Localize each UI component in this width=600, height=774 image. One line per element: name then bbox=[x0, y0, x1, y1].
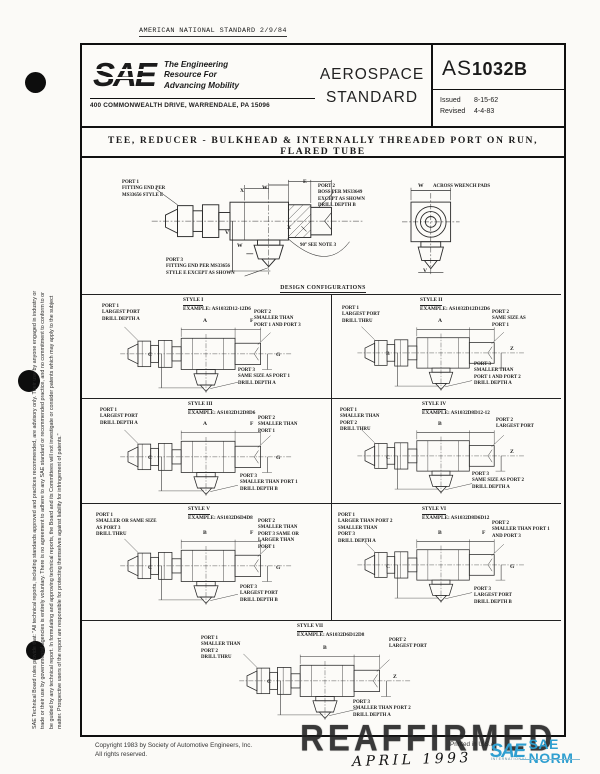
style-name: STYLE IV bbox=[422, 401, 446, 410]
dim-top1: A bbox=[203, 421, 207, 427]
style-cell-1: STYLE I EXAMPLE: AS1032D12-12D6 PORT 1 L… bbox=[88, 296, 330, 398]
page-title: TEE, REDUCER - BULKHEAD & INTERNALLY THR… bbox=[82, 135, 564, 157]
dim-right: Z bbox=[510, 346, 514, 352]
style-name: STYLE II bbox=[420, 297, 442, 306]
tee-drawing bbox=[346, 529, 536, 605]
across-wrench-pads-label: ACROSS WRENCH PADS bbox=[433, 184, 523, 190]
style-name: STYLE I bbox=[183, 297, 203, 306]
dim-top1: B bbox=[438, 530, 442, 536]
dim-top1: B bbox=[438, 421, 442, 427]
dim-top1: B bbox=[203, 530, 207, 536]
logo-slat bbox=[93, 77, 165, 79]
style-heading: STYLE VI EXAMPLE: AS1032D8D6D12 bbox=[422, 506, 489, 522]
sae-address: 400 COMMONWEALTH DRIVE, WARRENDALE, PA 1… bbox=[90, 102, 270, 109]
callout-port3: PORT 3 FITTING END PER MS33656 STYLE E E… bbox=[166, 258, 276, 277]
address-rule bbox=[90, 98, 315, 99]
dim-left: B bbox=[386, 351, 390, 357]
grid-line-h3 bbox=[82, 503, 561, 504]
style-heading: STYLE V EXAMPLE: AS1032D6D4D8 bbox=[188, 506, 253, 522]
issued-label: Issued bbox=[440, 95, 474, 106]
grid-line-h1 bbox=[82, 294, 561, 295]
style-cell-4: STYLE IV EXAMPLE: AS1032D8D12-12 PORT 1 … bbox=[332, 400, 560, 501]
end-view-drawing bbox=[393, 182, 465, 278]
copyright-line1: Copyright 1983 by Society of Automotive … bbox=[95, 741, 252, 750]
dim-letter-x: X bbox=[240, 188, 244, 194]
issued-row: Issued8-15-62 bbox=[440, 95, 498, 106]
dim-top1: B bbox=[323, 645, 327, 651]
style-cell-3: STYLE III EXAMPLE: AS1032D12D8D6 PORT 1 … bbox=[88, 400, 330, 501]
style-name: STYLE VI bbox=[422, 506, 446, 515]
style-name: STYLE III bbox=[188, 401, 212, 410]
doc-number-rule bbox=[432, 89, 564, 90]
dim-left: C bbox=[386, 564, 390, 570]
side-disclaimer: SAE Technical Board rules provide that: … bbox=[31, 81, 65, 729]
title-band: TEE, REDUCER - BULKHEAD & INTERNALLY THR… bbox=[82, 127, 564, 158]
style-example: EXAMPLE: AS1032D12D12D6 bbox=[420, 306, 490, 312]
style-example: EXAMPLE: AS1032D6D4D8 bbox=[188, 515, 253, 521]
dim-left: C bbox=[148, 352, 152, 358]
dim-top2: F bbox=[250, 421, 253, 427]
grid-line-h2 bbox=[82, 398, 561, 399]
revised-row: Revised4-4-83 bbox=[440, 106, 498, 117]
tee-drawing bbox=[108, 529, 304, 607]
sae-logo: SAE bbox=[93, 58, 155, 91]
dim-right: G bbox=[276, 455, 280, 461]
ansi-header: AMERICAN NATIONAL STANDARD 2/9/84 bbox=[139, 27, 287, 37]
dim-letter-v: V bbox=[225, 230, 229, 236]
tee-drawing bbox=[346, 317, 536, 393]
callout-port2: PORT 2 BOSS PER MS33649 EXCEPT AS SHOWN … bbox=[318, 184, 396, 210]
revised-label: Revised bbox=[440, 106, 474, 117]
dim-letter-e: E bbox=[303, 179, 307, 185]
dim-top2: F bbox=[250, 530, 253, 536]
style-name: STYLE V bbox=[188, 506, 210, 515]
dim-right: Z bbox=[510, 449, 514, 455]
section-heading: DESIGN CONFIGURATIONS bbox=[82, 285, 564, 291]
dim-right: Z bbox=[393, 674, 397, 680]
doc-type: AEROSPACE STANDARD bbox=[314, 63, 430, 110]
dim-left: C bbox=[148, 455, 152, 461]
doc-number-value: 1032B bbox=[472, 59, 528, 79]
style-example: EXAMPLE: AS1032D8D12-12 bbox=[422, 410, 490, 416]
dim-top1: A bbox=[203, 318, 207, 324]
dim-top2: F bbox=[250, 318, 253, 324]
style-cell-2: STYLE II EXAMPLE: AS1032D12D12D6 PORT 1 … bbox=[332, 296, 560, 398]
style-cell-5: STYLE V EXAMPLE: AS1032D6D4D8 PORT 1 SMA… bbox=[88, 505, 330, 618]
style-example: EXAMPLE: AS1032D12-12D6 bbox=[183, 306, 251, 312]
style-heading: STYLE VII EXAMPLE: AS1032D6D12D8 bbox=[297, 623, 364, 639]
tee-drawing bbox=[108, 317, 304, 395]
style-heading: STYLE II EXAMPLE: AS1032D12D12D6 bbox=[420, 297, 490, 313]
sae-norm-rule bbox=[520, 759, 580, 760]
dim-right: G bbox=[510, 564, 514, 570]
style-heading: STYLE I EXAMPLE: AS1032D12-12D6 bbox=[183, 297, 251, 313]
doc-dates: Issued8-15-62 Revised4-4-83 bbox=[440, 95, 498, 117]
sae-logo-text: SAE bbox=[93, 56, 155, 93]
dim-top1: A bbox=[438, 318, 442, 324]
tee-drawing bbox=[346, 420, 536, 496]
doc-type-line1: AEROSPACE bbox=[314, 63, 430, 86]
tee-drawing bbox=[108, 420, 304, 498]
dim-right: G bbox=[276, 565, 280, 571]
disclaimer-line: trade or their use by governmental agenc… bbox=[39, 81, 47, 729]
sae-tagline: The Engineering Resource For Advancing M… bbox=[164, 60, 239, 91]
dim-letter-x2: X bbox=[287, 225, 291, 231]
doc-number: AS1032B bbox=[442, 57, 528, 81]
dim-top2: F bbox=[482, 530, 485, 536]
style-cell-7: STYLE VII EXAMPLE: AS1032D6D12D8 PORT 1 … bbox=[185, 622, 465, 726]
style-cell-6: STYLE VI EXAMPLE: AS1032D8D6D12 PORT 1 L… bbox=[332, 505, 560, 618]
style-heading: STYLE IV EXAMPLE: AS1032D8D12-12 bbox=[422, 401, 490, 417]
callout-note: 90° SEE NOTE 3 bbox=[300, 243, 360, 249]
style-example: EXAMPLE: AS1032D6D12D8 bbox=[297, 632, 364, 638]
dim-left: C bbox=[386, 455, 390, 461]
dim-right: G bbox=[276, 352, 280, 358]
header-divider-vertical bbox=[431, 45, 433, 126]
dim-left: C bbox=[267, 679, 271, 685]
revised-date: 4-4-83 bbox=[474, 108, 494, 115]
handwritten-date: APRIL 1993 bbox=[352, 750, 472, 770]
endview-dim-v: V bbox=[423, 268, 427, 274]
disclaimer-line: matter. Prospective users of the report … bbox=[56, 81, 64, 729]
style-example: EXAMPLE: AS1032D12D8D6 bbox=[188, 410, 255, 416]
style-heading: STYLE III EXAMPLE: AS1032D12D8D6 bbox=[188, 401, 255, 417]
dim-left: C bbox=[148, 565, 152, 571]
tee-drawing bbox=[227, 644, 423, 722]
copyright-line2: All rights reserved. bbox=[95, 750, 252, 759]
section-heading-text: DESIGN CONFIGURATIONS bbox=[280, 285, 365, 293]
callout-port1: PORT 1 FITTING END PER MS33656 STYLE E bbox=[122, 180, 202, 199]
copyright: Copyright 1983 by Society of Automotive … bbox=[95, 741, 252, 760]
scanned-standard-page: { "page": { "ans_header": "AMERICAN NATI… bbox=[0, 0, 600, 774]
logo-slat bbox=[93, 69, 165, 71]
dim-letter-w: W bbox=[262, 185, 268, 191]
doc-number-prefix: AS bbox=[442, 57, 472, 80]
endview-dim-w: W bbox=[418, 183, 424, 189]
doc-type-line2: STANDARD bbox=[314, 86, 430, 109]
disclaimer-line: SAE Technical Board rules provide that: … bbox=[31, 81, 39, 729]
sae-norm-logo-name: SAE NORM bbox=[529, 737, 600, 765]
style-name: STYLE VII bbox=[297, 623, 323, 632]
issued-date: 8-15-62 bbox=[474, 97, 498, 104]
dim-letter-w2: W bbox=[237, 243, 243, 249]
disclaimer-line: be guided by any technical report. In fo… bbox=[48, 81, 56, 729]
grid-line-h4 bbox=[82, 620, 561, 621]
style-example: EXAMPLE: AS1032D8D6D12 bbox=[422, 515, 489, 521]
